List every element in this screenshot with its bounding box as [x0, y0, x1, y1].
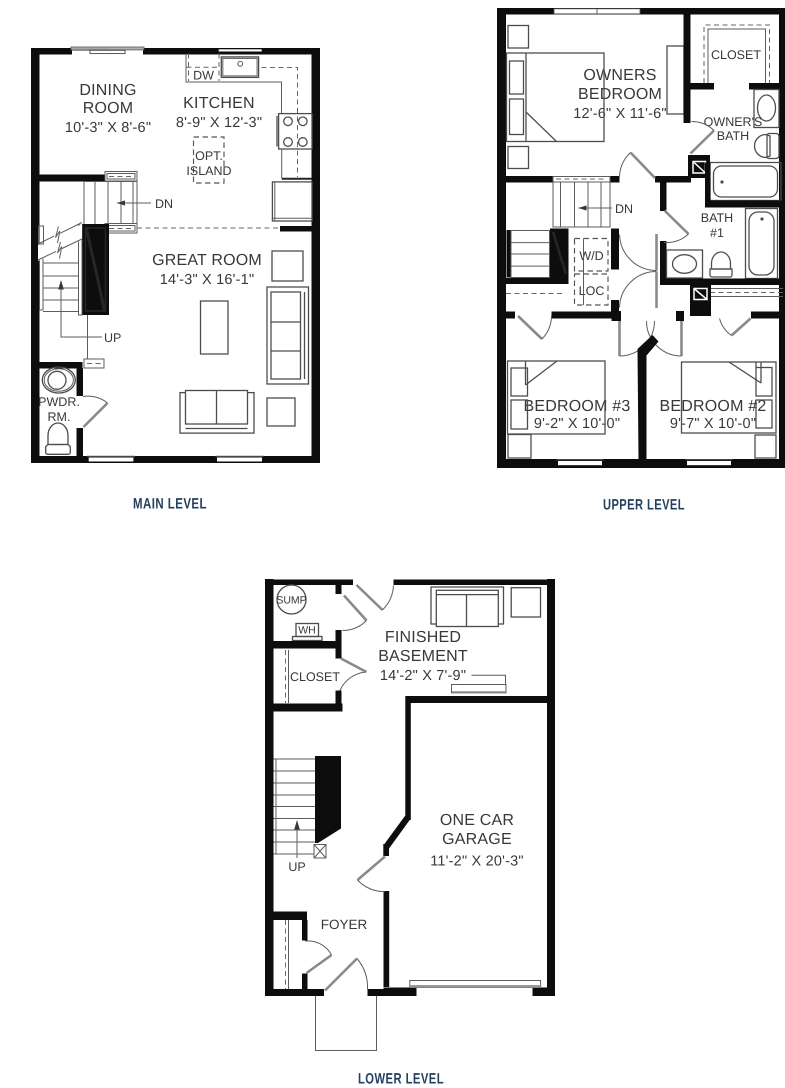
svg-text:ROOM: ROOM	[83, 100, 134, 117]
svg-text:#1: #1	[710, 226, 724, 240]
svg-text:WH: WH	[298, 625, 316, 637]
svg-text:14'-2" X 7'-9": 14'-2" X 7'-9"	[380, 668, 466, 684]
svg-text:DN: DN	[155, 197, 173, 211]
svg-text:DW: DW	[193, 69, 214, 83]
svg-text:OWNER'S: OWNER'S	[704, 115, 763, 129]
svg-text:PWDR.: PWDR.	[38, 395, 80, 409]
svg-text:GREAT ROOM: GREAT ROOM	[152, 252, 262, 269]
svg-text:RM.: RM.	[48, 410, 71, 424]
svg-text:FOYER: FOYER	[321, 917, 368, 932]
svg-text:11'-2" X 20'-3": 11'-2" X 20'-3"	[430, 854, 524, 870]
svg-text:OWNERS: OWNERS	[583, 67, 656, 84]
svg-text:MAIN LEVEL: MAIN LEVEL	[133, 496, 207, 513]
svg-text:8'-9" X 12'-3": 8'-9" X 12'-3"	[176, 115, 262, 131]
svg-text:14'-3" X 16'-1": 14'-3" X 16'-1"	[160, 272, 255, 288]
svg-text:9'-7" X 10'-0": 9'-7" X 10'-0"	[670, 416, 756, 432]
svg-text:KITCHEN: KITCHEN	[183, 95, 255, 112]
svg-text:BASEMENT: BASEMENT	[378, 648, 468, 665]
svg-text:UPPER LEVEL: UPPER LEVEL	[603, 497, 685, 514]
svg-text:BEDROOM #3: BEDROOM #3	[524, 398, 631, 415]
svg-text:W/D: W/D	[579, 249, 603, 263]
svg-text:OPT.: OPT.	[195, 149, 223, 163]
svg-text:12'-6" X 11'-6": 12'-6" X 11'-6"	[573, 106, 667, 122]
svg-text:LOC: LOC	[579, 284, 605, 298]
svg-text:SUMP: SUMP	[276, 595, 306, 607]
svg-text:GARAGE: GARAGE	[442, 831, 512, 848]
svg-text:9'-2" X 10'-0": 9'-2" X 10'-0"	[534, 416, 620, 432]
svg-text:LOWER LEVEL: LOWER LEVEL	[358, 1071, 444, 1088]
svg-text:ONE CAR: ONE CAR	[440, 812, 514, 829]
svg-text:BEDROOM: BEDROOM	[578, 86, 662, 103]
svg-text:ISLAND: ISLAND	[186, 164, 231, 178]
svg-text:UP: UP	[104, 331, 121, 345]
svg-text:10'-3" X 8'-6": 10'-3" X 8'-6"	[65, 120, 151, 136]
svg-text:DINING: DINING	[79, 82, 136, 99]
svg-text:UP: UP	[288, 860, 305, 874]
svg-text:BATH: BATH	[717, 129, 749, 143]
svg-text:DN: DN	[615, 202, 633, 216]
svg-text:CLOSET: CLOSET	[711, 48, 761, 62]
svg-text:FINISHED: FINISHED	[385, 629, 461, 646]
svg-text:CLOSET: CLOSET	[290, 670, 340, 684]
svg-text:BEDROOM #2: BEDROOM #2	[660, 398, 767, 415]
svg-text:BATH: BATH	[701, 211, 733, 225]
